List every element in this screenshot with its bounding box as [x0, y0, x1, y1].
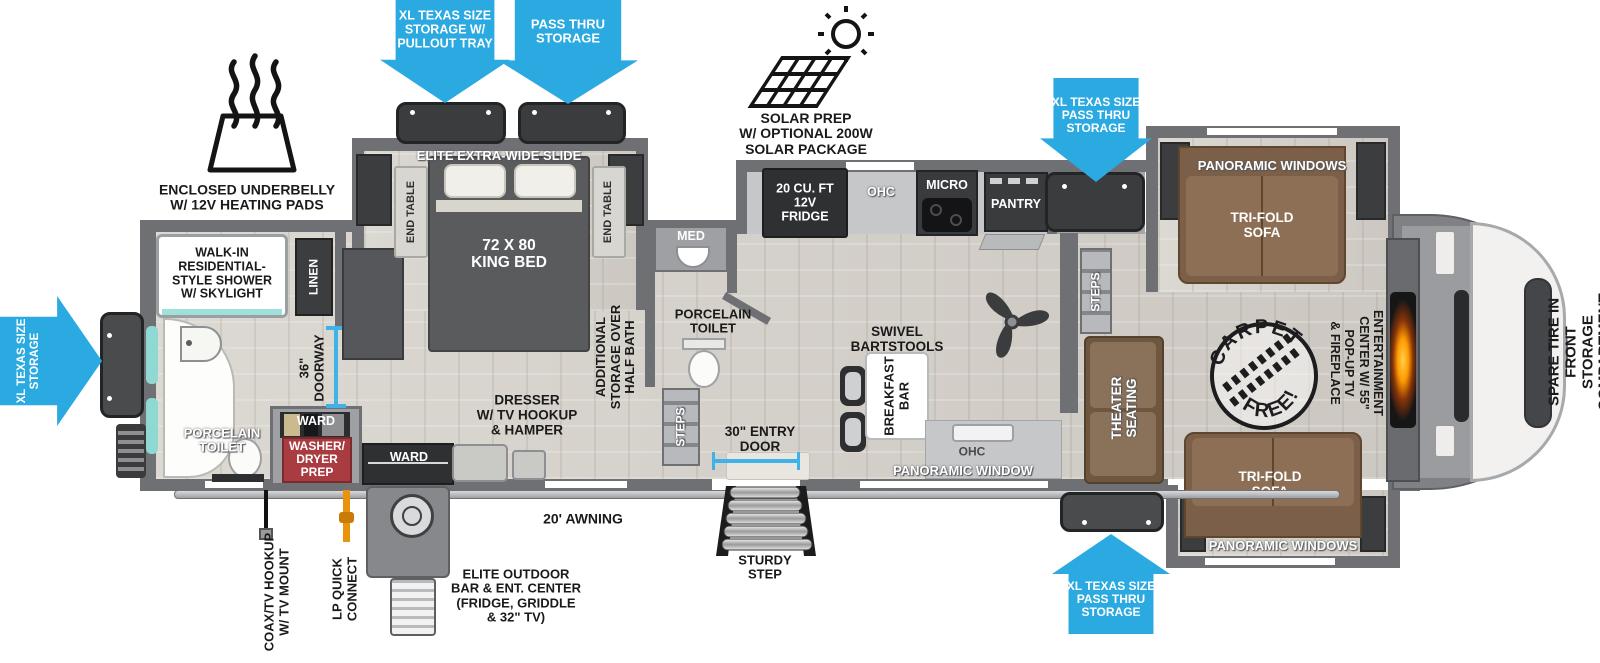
med-label: MED: [677, 230, 705, 244]
cooktop-icon: [922, 198, 972, 232]
cap-handle: [1434, 424, 1456, 458]
sofa-slide-bot-right: [1388, 485, 1400, 568]
breakfast-bar-label: BREAKFAST BAR: [882, 356, 911, 435]
slide-label: ELITE EXTRA-WIDE SLIDE: [417, 149, 582, 163]
slide-window: [1360, 496, 1386, 552]
hinge-dot: [532, 110, 537, 115]
hinge-dot: [1146, 520, 1151, 525]
griddle-inner-icon: [402, 506, 422, 526]
shower-skylight-strip: [162, 309, 282, 315]
roof-storage-box: [518, 102, 626, 144]
ceiling-fan-icon: [972, 282, 1052, 362]
sturdy-step-label: STURDY STEP: [738, 554, 791, 583]
barstool-seat: [845, 418, 861, 446]
shower-label: WALK-IN RESIDENTIAL- STYLE SHOWER W/ SKY…: [172, 247, 272, 302]
bottom-storage-door: [1060, 492, 1164, 532]
entry-measure-cap: [712, 452, 715, 470]
awning-label: 20' AWNING: [543, 511, 623, 526]
pillow-icon: [444, 164, 506, 198]
outdoor-bar-label: ELITE OUTDOOR BAR & ENT. CENTER (FRIDGE,…: [451, 567, 581, 624]
window-sill: [545, 481, 627, 488]
pantry-shelf-icon: [990, 178, 1002, 184]
half-toilet-label: PORCELAIN TOILET: [675, 308, 752, 337]
rear-vent-icon: [116, 424, 146, 478]
sofa-slide-top-left: [1146, 126, 1158, 292]
barstools-label: SWIVEL BARTSTOOLS: [851, 325, 944, 355]
doorway-measure-line: [334, 326, 338, 408]
barstool-seat: [845, 372, 861, 400]
outdoor-fridge-icon: [390, 578, 436, 636]
hinge-dot: [486, 110, 491, 115]
faucet-icon: [186, 340, 192, 346]
bedroom-wardrobe: [342, 248, 404, 360]
kitchen-sink-icon: [952, 424, 1014, 442]
burner-icon: [950, 214, 962, 226]
sofa-top-label: TRI-FOLD SOFA: [1231, 211, 1294, 241]
arrow-pass-thru: [498, 0, 638, 104]
doorway-label: 36" DOORWAY: [297, 334, 326, 401]
hinge-dot: [107, 396, 112, 401]
pantry-label: PANTRY: [991, 198, 1041, 212]
pantry-shelf-icon: [1008, 178, 1020, 184]
sturdy-step-icon: [716, 486, 816, 556]
slide-window-sill: [1205, 558, 1335, 565]
rv-floorplan: WALK-IN RESIDENTIAL- STYLE SHOWER W/ SKY…: [0, 0, 1600, 663]
entry-measure-line: [712, 459, 800, 463]
half-toilet-icon: [688, 350, 720, 388]
end-table-right-label: END TABLE: [602, 181, 614, 243]
kitchen-window-sill: [846, 162, 914, 170]
rear-window-icon: [146, 326, 158, 384]
hinge-dot: [1122, 184, 1127, 189]
spare-tire-label: SPARE TIRE IN FRONT STORAGE COMPARTMENT: [1546, 293, 1600, 410]
linen-label: LINEN: [307, 259, 320, 295]
entry-door-label: 30" ENTRY DOOR: [725, 425, 795, 455]
lp-connect-label: LP QUICK CONNECT: [330, 557, 359, 621]
rear-storage-door: [100, 312, 144, 418]
ohc-label: OHC: [867, 186, 895, 200]
roof-storage-box: [396, 102, 506, 144]
pillow-icon: [514, 164, 576, 198]
window-sill: [205, 481, 263, 488]
washer-dryer-label: WASHER/ DRYER PREP: [289, 440, 345, 480]
theater-label: THEATER SEATING: [1109, 377, 1139, 440]
windows-bottom-label: PANORAMIC WINDOWS: [1209, 539, 1358, 553]
rear-toilet-mat: [212, 474, 264, 482]
dresser-hamper: [512, 450, 546, 480]
entertainment-label: ENTERTAINMENT CENTER W/ 55" POP-UP TV & …: [1327, 310, 1385, 416]
dresser: [452, 444, 508, 482]
pantry-shelf-icon: [1026, 178, 1038, 184]
counter-flap: [979, 234, 1045, 250]
panoramic-window-label: PANORAMIC WINDOW: [893, 464, 1033, 478]
coax-cable-icon: [264, 490, 268, 530]
halfbath-wall-right: [727, 231, 737, 293]
hinge-dot: [1082, 520, 1087, 525]
arrow-front-top-label: XL TEXAS SIZE PASS THRU STORAGE: [1052, 96, 1140, 136]
fireplace-icon: [1390, 292, 1416, 428]
entry-measure-cap: [797, 452, 800, 470]
bedroom-ward-label: WARD: [390, 451, 428, 465]
coax-label: COAX/TV HOOKUP W/ TV MOUNT: [262, 533, 291, 651]
kitchen-wall-left: [736, 160, 747, 234]
hinge-dot: [606, 110, 611, 115]
dresser-label: DRESSER W/ TV HOOKUP & HAMPER: [477, 394, 578, 439]
bed-sheet-band: [436, 200, 582, 212]
hinge-dot: [410, 110, 415, 115]
living-steps-label: STEPS: [1089, 272, 1102, 311]
rear-window-icon: [146, 398, 158, 454]
heating-pads-icon: [198, 52, 306, 178]
half-toilet-tank: [682, 338, 726, 350]
bed-slide-window: [356, 154, 392, 226]
doorway-measure-cap: [326, 404, 346, 408]
window-sill: [860, 481, 1048, 488]
overhead-storage-label: ADDITIONAL STORAGE OVER HALF BATH: [594, 305, 638, 410]
underbelly-label: ENCLOSED UNDERBELLY W/ 12V HEATING PADS: [159, 183, 335, 214]
king-bed-label: 72 X 80 KING BED: [471, 237, 547, 271]
lp-connect-fitting: [339, 512, 354, 523]
rear-toilet-label: PORCELAIN TOILET: [184, 427, 261, 456]
halfbath-steps-label: STEPS: [674, 407, 687, 446]
rear-ward-label: WARD: [297, 415, 335, 429]
hinge-dot: [1062, 184, 1067, 189]
solar-label: SOLAR PREP W/ OPTIONAL 200W SOLAR PACKAG…: [739, 111, 873, 157]
micro-label: MICRO: [926, 179, 968, 193]
burner-icon: [930, 204, 942, 216]
top-wall-rear: [140, 220, 356, 232]
hinge-dot: [107, 333, 112, 338]
slide-window: [1356, 142, 1386, 220]
end-table-left-label: END TABLE: [405, 181, 417, 243]
arrow-front-bottom-label: XL TEXAS SIZE PASS THRU STORAGE: [1067, 580, 1155, 620]
solar-panel-icon: [742, 6, 882, 116]
sun-icon: [833, 21, 859, 47]
fridge-label: 20 CU. FT 12V FRIDGE: [776, 182, 834, 223]
arrow-pass-thru-label: PASS THRU STORAGE: [531, 18, 605, 47]
slide-window-sill: [1207, 128, 1337, 135]
arrow-rear-storage-label: XL TEXAS SIZE STORAGE: [16, 319, 42, 404]
living-divider-wall: [1060, 233, 1078, 413]
windows-top-label: PANORAMIC WINDOWS: [1198, 159, 1347, 173]
tv-strip: [1454, 290, 1469, 422]
arrow-storage-pullout-label: XL TEXAS SIZE STORAGE W/ PULLOUT TRAY: [397, 9, 492, 50]
cap-handle: [1434, 230, 1456, 276]
ohc-lower-label: OHC: [959, 445, 986, 458]
